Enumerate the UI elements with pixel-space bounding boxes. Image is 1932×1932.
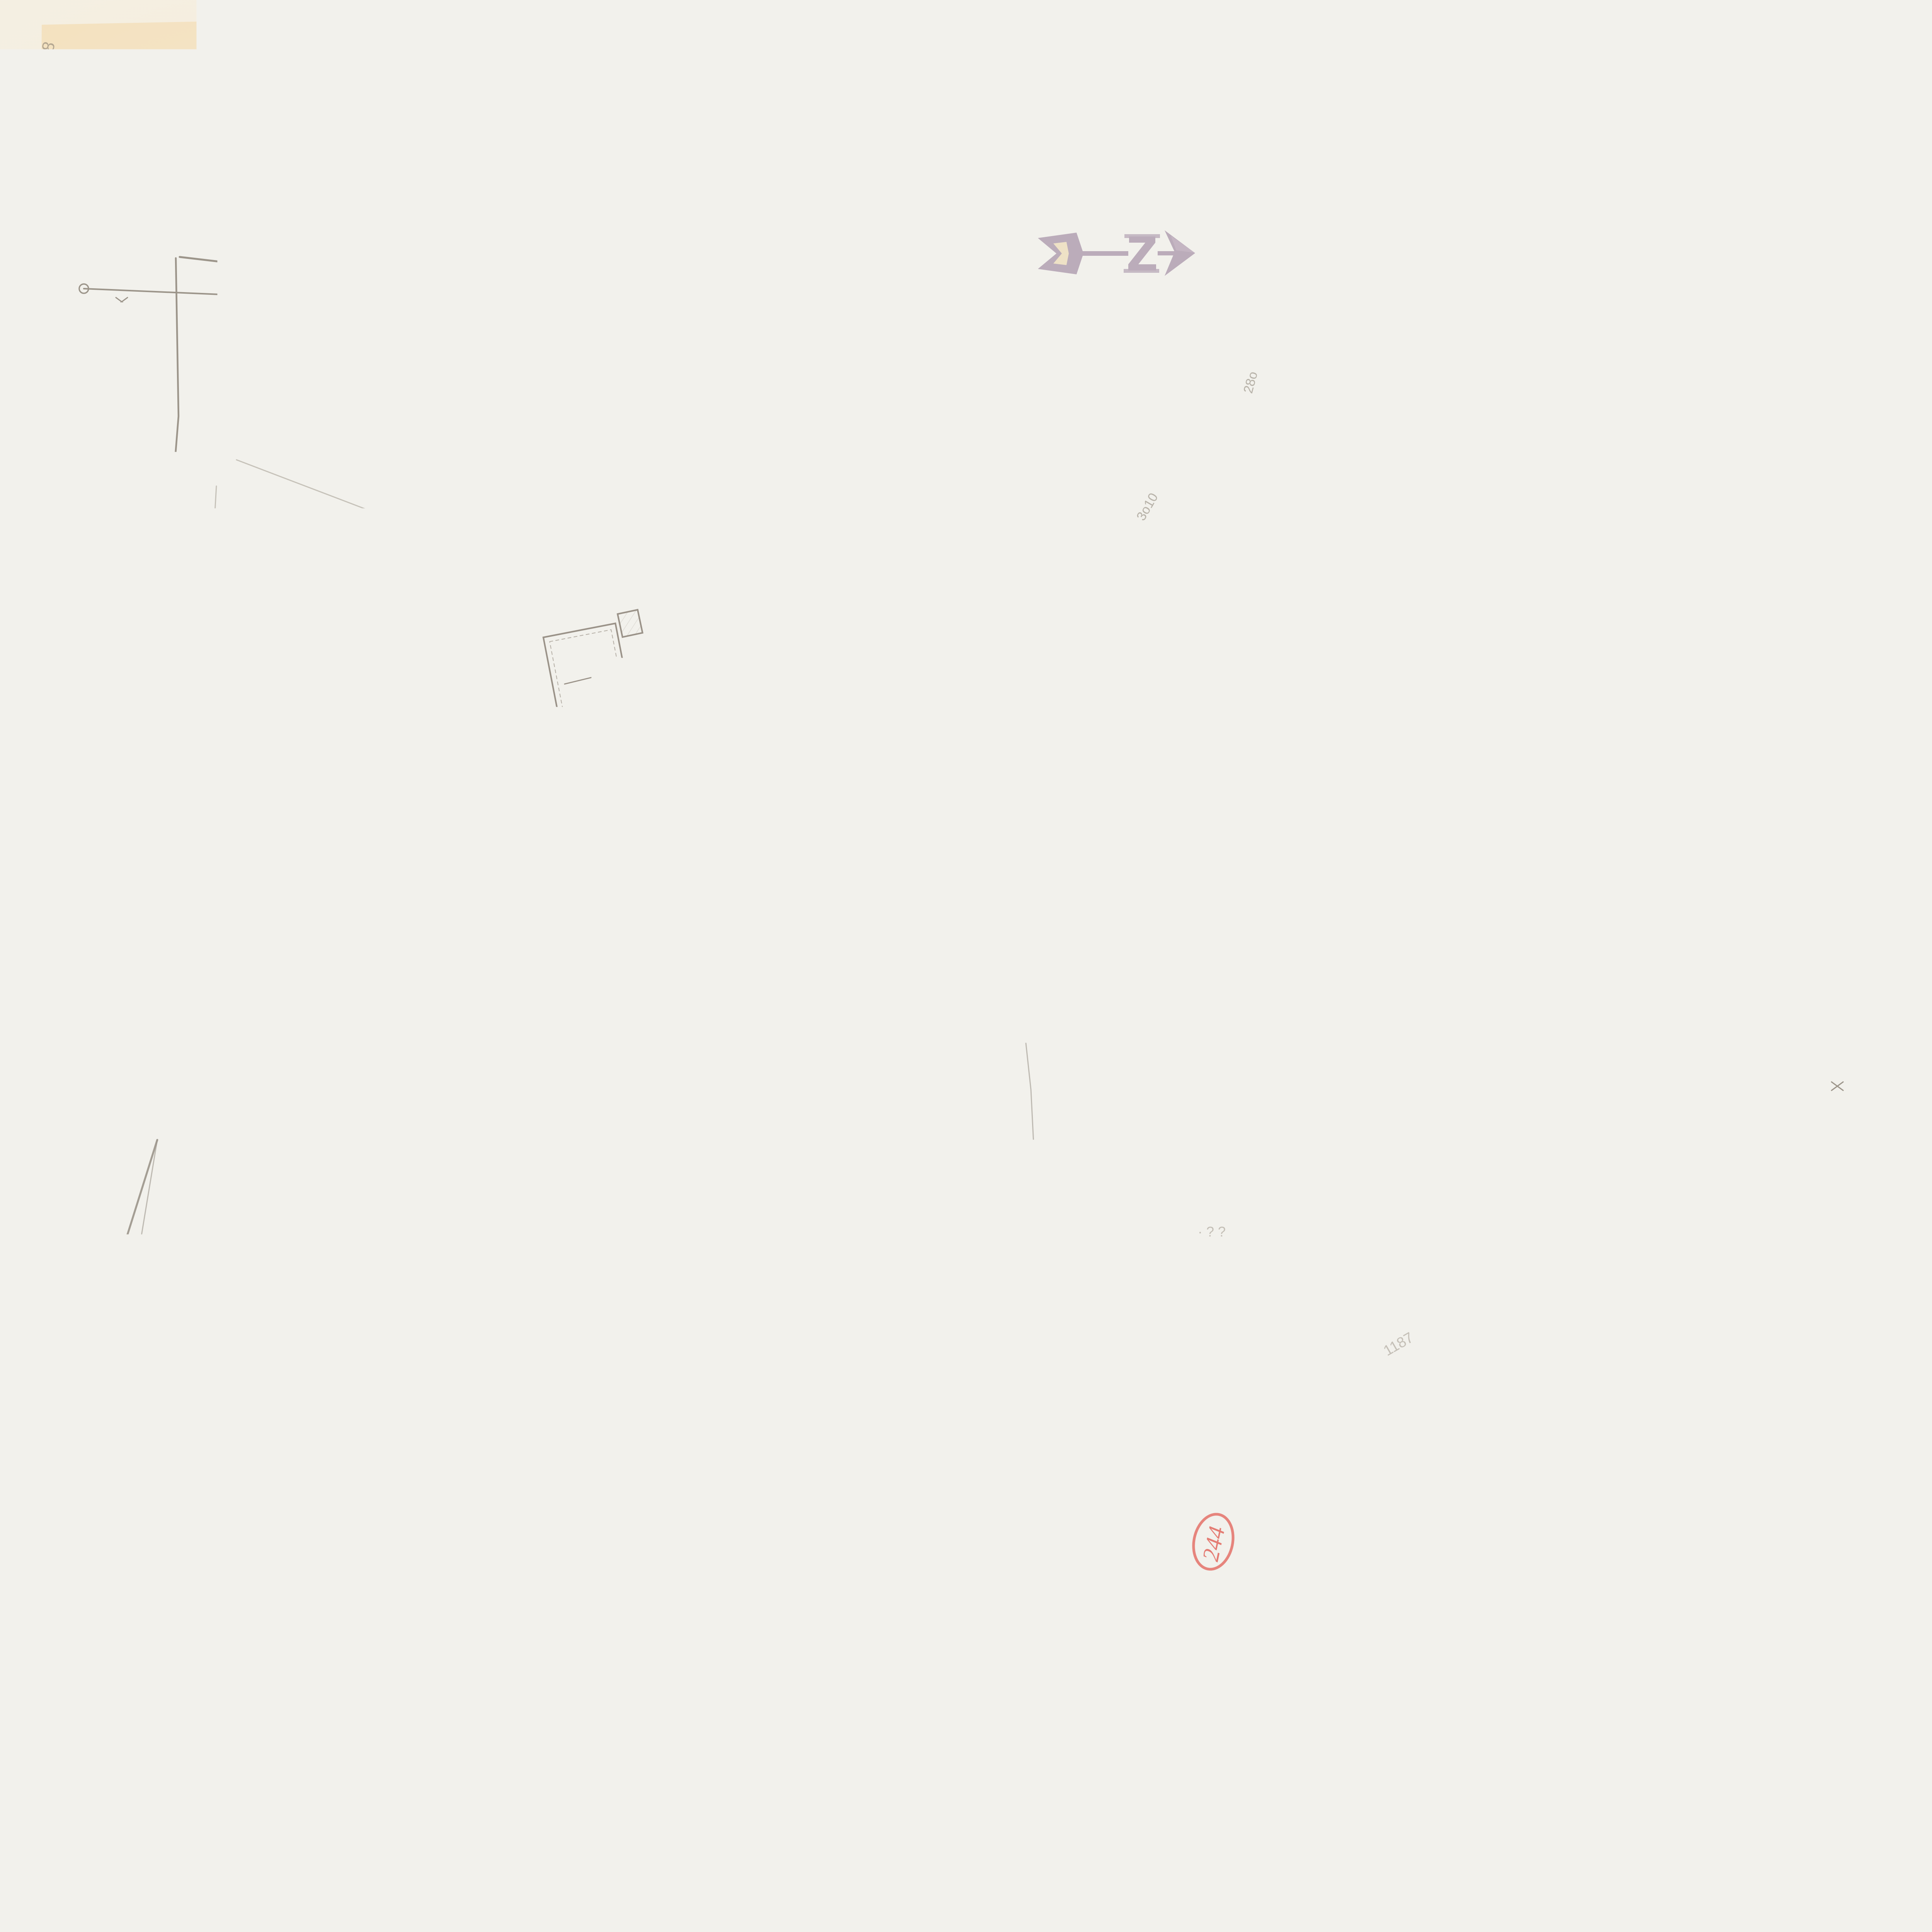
svg-text:1ПЖ: 1ПЖ [254,1477,287,1495]
svg-text:4432: 4432 [54,1355,87,1371]
svg-text:862-: 862- [325,1599,352,1614]
svg-text:233: 233 [943,808,963,822]
svg-text:739: 739 [185,1520,204,1532]
svg-text:248: 248 [121,1428,151,1467]
svg-text:3115: 3115 [43,1198,71,1213]
svg-text:110 ч: 110 ч [951,947,980,961]
svg-text:574: 574 [348,545,368,559]
svg-text:· ? ?: · ? ? [1198,1224,1226,1240]
svg-text:-285-: -285- [89,940,123,956]
svg-text:-1·33-: -1·33- [193,1762,226,1776]
svg-text:- 498-: - 498- [1182,723,1217,737]
svg-text:×: × [981,783,990,799]
svg-text:3010: 3010 [43,1175,72,1189]
svg-text:2547: 2547 [43,1391,72,1406]
svg-text:491: 491 [1041,1232,1068,1251]
svg-text:4740 — 714: 4740 — 714 [50,496,139,514]
svg-text:о8о-: о8о- [348,507,372,520]
svg-text:5о оо: 5о оо [46,261,91,281]
svg-text:411-: 411- [1012,850,1036,864]
svg-text:3938: 3938 [625,253,649,294]
svg-text:(издадена в/ с): (издадена в/ с) [1325,117,1466,136]
svg-text:√ чо?: √ чо? [1770,1211,1798,1224]
svg-text:3403: 3403 [1082,875,1108,888]
svg-text:3477: 3477 [50,1492,78,1506]
svg-text:-3 62: -3 62 [43,958,73,973]
svg-text:380: 380 [209,1558,229,1571]
svg-text:2146: 2146 [1121,873,1150,888]
svg-text:2699 600: 2699 600 [51,828,119,846]
svg-text:-216-: -216- [294,1394,326,1410]
svg-text:ПС: ПС [294,1626,314,1641]
svg-text:4058: 4058 [54,1409,87,1425]
svg-text:755: 755 [185,1536,204,1548]
svg-text:-764-: -764- [444,1626,479,1642]
svg-text:3: 3 [1549,64,1567,99]
svg-text:3183: 3183 [1066,948,1092,961]
svg-text:544: 544 [43,1797,65,1811]
svg-text:478: 478 [43,1677,65,1692]
svg-text:946: 946 [58,1046,82,1062]
svg-text:70·13: 70·13 [52,161,96,180]
svg-text:×: × [128,421,136,438]
svg-text:-299-: -299- [228,500,264,517]
svg-text:√: √ [1144,915,1151,930]
svg-text:110 ч: 110 ч [1028,875,1056,888]
svg-text:196: 196 [270,1443,289,1455]
svg-text:456 →: 456 → [124,1107,169,1124]
svg-text:2|·6?: 2|·6? [1012,832,1039,845]
svg-text:3248: 3248 [48,1569,76,1583]
svg-text:1015: 1015 [162,505,195,521]
svg-text:3386: 3386 [50,1531,78,1544]
svg-text:-870-: -870- [594,1283,629,1302]
svg-text:0·75: 0·75 [162,1066,189,1081]
svg-text:23 88: 23 88 [951,895,985,911]
svg-text:2483: 2483 [1090,971,1116,984]
svg-text:27|2: 27|2 [50,1646,76,1661]
svg-text:3105 625: 3105 625 [53,764,121,782]
svg-text:735: 735 [267,397,290,413]
svg-text:(36·о3|: (36·о3| [765,1681,804,1695]
svg-text:-471-: -471- [116,1007,150,1024]
svg-text:2|83: 2|83 [1105,896,1131,911]
svg-text:3707: 3707 [50,1453,78,1467]
svg-text:433-862: 433-862 [43,1000,94,1015]
svg-text:1: 1 [1503,105,1518,134]
svg-text:4501: 4501 [1113,932,1140,946]
svg-text:510: 510 [804,1622,827,1638]
svg-text:456: 456 [43,1700,65,1715]
svg-text:3763: 3763 [1121,645,1150,660]
svg-text:514: 514 [348,1413,371,1429]
svg-text:√: √ [981,1772,990,1789]
svg-text:1ПС: 1ПС [548,1314,577,1332]
svg-text:ПС: ПС [456,1684,477,1700]
svg-text:-350-: -350- [286,507,315,520]
svg-text:-759-: -759- [440,1417,475,1433]
svg-text:300: 300 [1518,153,1555,178]
svg-text:380: 380 [216,1628,236,1641]
svg-text:-759 -: -759 - [1128,702,1165,718]
svg-text:3583: 3583 [989,873,1019,888]
svg-text:23 17: 23 17 [43,1437,75,1452]
svg-text:ч: ч [394,961,401,977]
svg-text:РЕГ. СКИЦА №: РЕГ. СКИЦА № [1335,78,1519,100]
svg-text:-9·66: -9·66 [43,1882,73,1896]
svg-text:061: 061 [166,1144,187,1158]
svg-text:1ПС: 1ПС [348,1681,374,1696]
svg-text:3266 ⊙: 3266 ⊙ [48,1552,90,1566]
svg-text:5743: 5743 [1059,850,1088,865]
svg-text:ПОЛИГОН №: ПОЛИГОН № [1330,135,1466,156]
svg-text:216?: 216? [1144,898,1170,911]
svg-text:5555 692: 5555 692 [49,372,124,392]
svg-text:-193-: -193- [831,1662,861,1676]
svg-text:170: 170 [209,452,231,468]
svg-text:√: √ [1043,854,1051,869]
svg-text:ПС: ПС [188,871,207,888]
svg-text:- |15: - |15 [734,1517,762,1533]
svg-text:45о|: 45о| [989,854,1013,868]
svg-text:|о15| 2|46: |о15| 2|46 [958,831,1013,845]
svg-text:— 751 —: — 751 — [116,357,181,374]
svg-text:4753: 4753 [53,479,89,497]
svg-text:7015: 7015 [52,138,90,156]
svg-text:2: 2 [1321,1032,1329,1046]
svg-text:Мерка = 1:: Мерка = 1: [1339,162,1450,183]
svg-text:2 86: 2 86 [43,935,68,950]
svg-text:|||: ||| [958,724,967,736]
svg-text:ИЗ: ИЗ [1043,925,1059,938]
svg-text:5954: 5954 [51,286,89,304]
svg-text:628: 628 [43,1260,65,1274]
svg-text:1110: 1110 [58,1023,88,1039]
svg-text:3443: 3443 [50,1511,78,1525]
svg-text:3683: 3683 [50,1473,78,1486]
svg-text:4|5: 4|5 [1090,666,1105,679]
svg-text:2|83: 2|83 [981,808,1005,822]
svg-text:365: 365 [112,1038,135,1054]
